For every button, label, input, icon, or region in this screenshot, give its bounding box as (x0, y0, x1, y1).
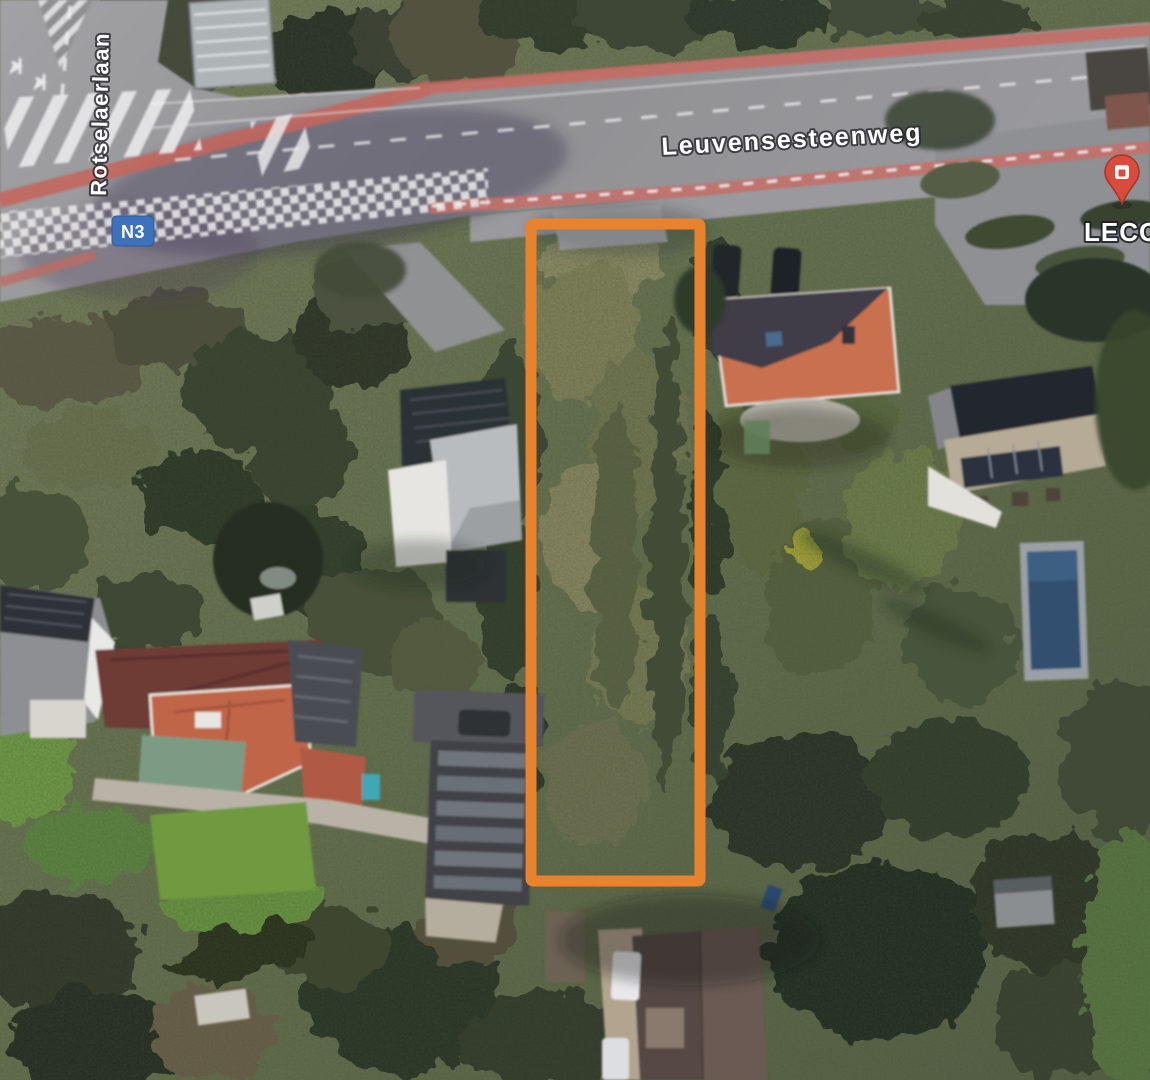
corner-building-roof (1105, 92, 1150, 130)
skylight (766, 331, 783, 346)
route-badge: N3 (112, 216, 154, 246)
satellite-map[interactable]: Leuvensesteenweg Rotselaerlaan N3 LECOT (0, 0, 1150, 1080)
greenhouse (189, 0, 275, 89)
white-car (602, 1038, 629, 1080)
roof-dormer (646, 1008, 684, 1048)
swimming-pool (1020, 541, 1089, 681)
route-badge-label: N3 (121, 222, 145, 242)
dormer (842, 326, 855, 344)
shed-right (993, 876, 1054, 928)
car-on-driveway (458, 709, 511, 737)
garden-object (362, 774, 380, 800)
poi-label[interactable]: LECOT (1084, 217, 1150, 247)
roof-window (195, 712, 221, 728)
side-road-label: Rotselaerlaan (86, 32, 114, 196)
satellite-imagery: Leuvensesteenweg Rotselaerlaan N3 LECOT (0, 0, 1150, 1080)
